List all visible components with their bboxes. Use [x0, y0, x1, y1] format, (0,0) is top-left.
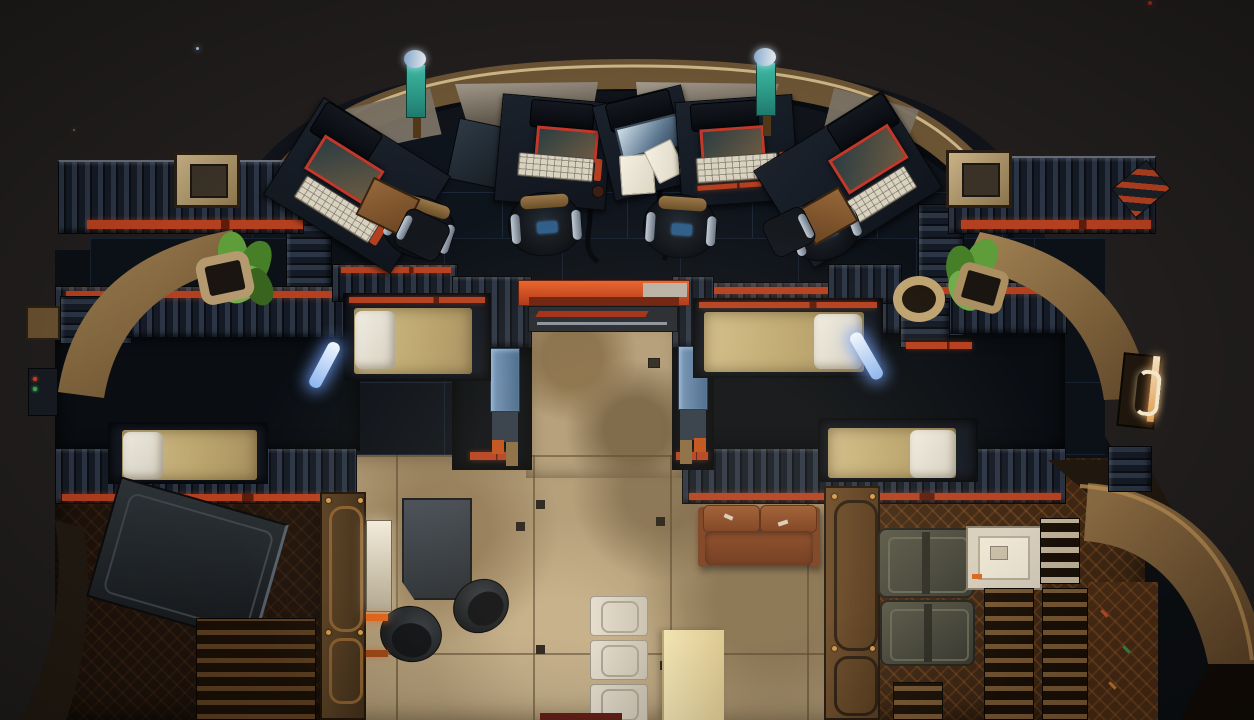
rivet	[870, 494, 875, 499]
storage-trunk[interactable]	[880, 600, 975, 666]
floor-bolt	[536, 500, 545, 509]
catwalk-bridge	[824, 486, 880, 720]
station-slot	[990, 546, 1008, 560]
led-green	[33, 387, 37, 391]
corridor-pillar-right-base	[680, 410, 706, 440]
panel-outline	[329, 506, 363, 632]
beacon-body	[406, 64, 426, 118]
port-arm-lamp-box	[174, 152, 240, 208]
grate-tread-long	[984, 588, 1034, 720]
lamp-inner	[962, 163, 1000, 197]
rivet	[326, 630, 331, 635]
couch-back-cushion	[760, 505, 817, 533]
supply-station[interactable]	[966, 526, 1042, 590]
grate-tread-bright	[1040, 518, 1080, 584]
glint-red	[1100, 609, 1108, 617]
side-table-pale[interactable]	[662, 630, 724, 720]
bed-red-trim	[349, 297, 485, 303]
orange-tab	[492, 440, 504, 454]
orange-tab	[694, 438, 706, 452]
rivet	[358, 498, 363, 503]
diamond-plate-patch	[1088, 582, 1158, 720]
corridor-pillar-left-base	[492, 412, 518, 442]
storage-trunk[interactable]	[878, 528, 974, 598]
signal-beacon-right	[755, 48, 779, 138]
ladder-rung	[590, 640, 648, 680]
lit-wall-strip	[366, 520, 392, 612]
port-edge-led-box	[28, 368, 58, 416]
chair-back	[658, 195, 707, 211]
wall-panel-brass	[320, 492, 366, 720]
console-red-bar	[594, 159, 603, 182]
chair-back	[520, 193, 569, 209]
handle-loop	[1134, 369, 1163, 417]
floor-bolt	[516, 522, 525, 531]
glint-orange	[1108, 681, 1116, 689]
red-trim	[341, 267, 451, 273]
station-orange-tick	[972, 574, 982, 579]
grate-tread-left	[196, 618, 316, 720]
corridor-door-underbeam	[528, 306, 678, 332]
grate-tread-long	[1042, 588, 1088, 720]
ladder-rung	[590, 596, 648, 636]
header-end-cap	[643, 283, 687, 297]
grate-tread-small	[893, 682, 943, 720]
starboard-mid-red-trim	[906, 342, 972, 349]
bridge-panel	[834, 500, 878, 651]
corridor-floor-latch[interactable]	[648, 358, 660, 368]
orange-glow-mark	[366, 650, 388, 657]
floor-ladder[interactable]	[590, 596, 652, 720]
signal-beacon-left	[405, 50, 429, 140]
rung-inset	[601, 645, 639, 677]
tan-post	[680, 440, 692, 464]
trunk-strap	[924, 604, 932, 662]
bridge-panel	[834, 656, 878, 716]
red-trim	[62, 494, 352, 501]
beacon-body	[756, 62, 776, 116]
bunk-bed-lower-right[interactable]	[818, 418, 978, 482]
hull-door-handle[interactable]	[1120, 354, 1162, 426]
corridor-pillar-left	[490, 348, 520, 412]
corridor-floor	[526, 318, 682, 478]
panel-outline	[329, 638, 363, 704]
rung-inset	[601, 601, 639, 633]
game-viewport[interactable]	[0, 0, 1254, 720]
starboard-hull-rib-segment	[1108, 446, 1152, 492]
bed-red-trim	[699, 302, 877, 308]
deck-red-strip	[540, 713, 622, 720]
pillow	[910, 430, 956, 478]
chair-label	[671, 223, 692, 235]
bunk-bed-upper-left[interactable]	[343, 293, 491, 381]
mess-table-dark[interactable]	[402, 498, 472, 600]
rivet	[326, 498, 331, 503]
arm-red-stripe	[87, 220, 303, 229]
orange-glow-mark	[366, 614, 388, 621]
bunk-bed-lower-left[interactable]	[108, 422, 268, 484]
leather-couch[interactable]	[698, 505, 820, 569]
rivet	[832, 646, 837, 651]
floor-bolt	[656, 517, 665, 526]
chair-arm	[645, 212, 656, 243]
chair-arm	[510, 214, 521, 245]
corridor-door-header	[518, 280, 690, 306]
couch-seat	[705, 531, 813, 565]
arm-red-stripe	[961, 220, 1151, 229]
tan-post	[506, 442, 518, 466]
header-shadow-streak	[529, 297, 679, 305]
pillow	[355, 311, 395, 369]
rivet	[870, 646, 875, 651]
port-edge-brass-box	[26, 306, 60, 340]
floor-bolt	[536, 645, 545, 654]
glint-green	[1122, 645, 1130, 653]
pillow	[123, 432, 163, 479]
starboard-arm-lamp-box	[946, 150, 1012, 208]
underbeam-silver-line	[537, 322, 667, 325]
stool-dip	[389, 619, 435, 661]
underbeam-red-streak	[535, 311, 648, 317]
starboard-ring-chair[interactable]	[893, 276, 945, 322]
chair-arm	[571, 210, 582, 241]
chair-label	[537, 221, 558, 233]
beacon-cap	[754, 48, 776, 66]
console-knob[interactable]	[591, 184, 605, 198]
rivet	[358, 630, 363, 635]
port-edge-rib-box	[60, 296, 132, 344]
lamp-inner	[190, 164, 228, 198]
led-red	[33, 377, 37, 381]
beacon-cap	[404, 50, 426, 68]
trunk-strap	[922, 532, 930, 594]
rivet	[832, 494, 837, 499]
